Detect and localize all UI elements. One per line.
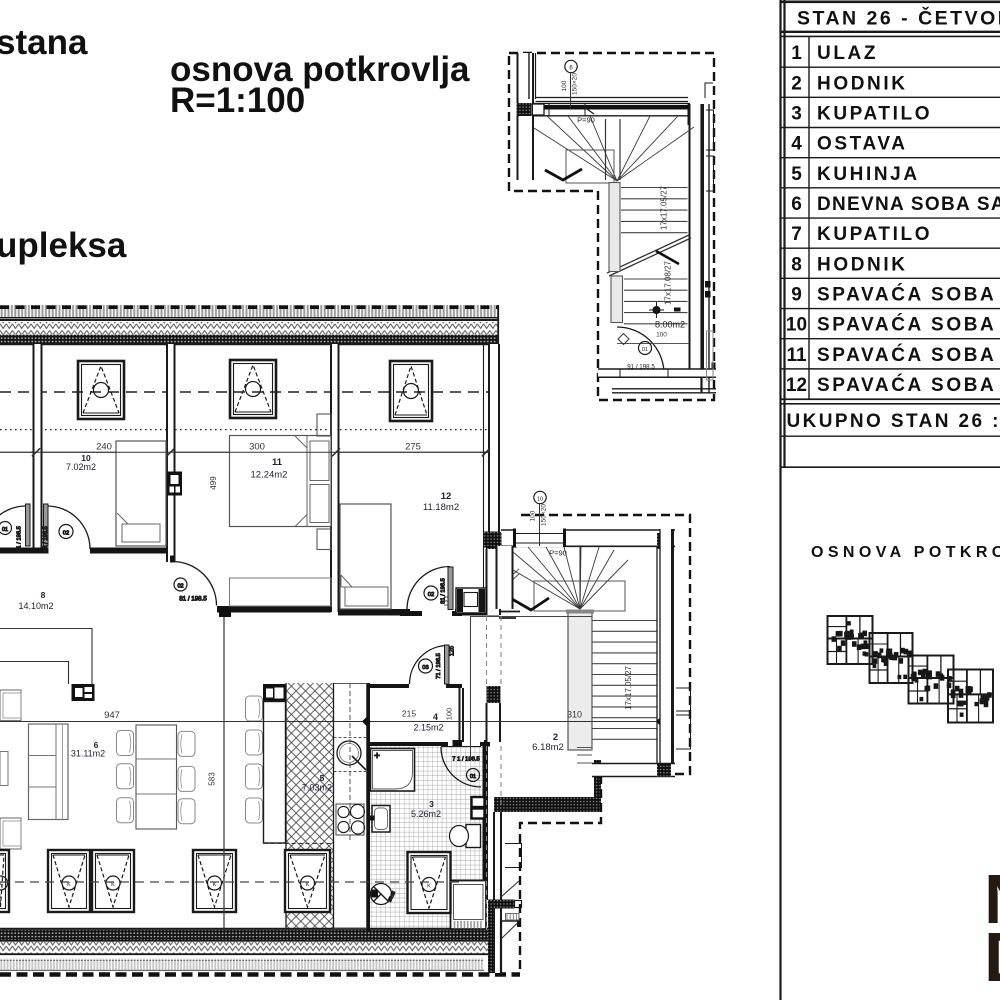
svg-text:K: K	[213, 882, 217, 888]
svg-text:02: 02	[428, 592, 434, 598]
svg-text:10: 10	[786, 315, 807, 336]
svg-text:7.03m2: 7.03m2	[302, 783, 332, 793]
svg-text:P=90: P=90	[549, 549, 567, 558]
svg-text:OSTAVA: OSTAVA	[817, 134, 908, 155]
svg-text:stana: stana	[0, 23, 88, 62]
svg-text:4: 4	[433, 712, 438, 722]
svg-text:5.26m2: 5.26m2	[411, 809, 441, 819]
svg-text:03: 03	[422, 665, 428, 671]
svg-text:240: 240	[96, 442, 112, 453]
svg-text:SPAVAĆA SOBA: SPAVAĆA SOBA	[817, 283, 996, 305]
svg-text:HODNIK: HODNIK	[817, 73, 908, 94]
svg-text:10: 10	[537, 497, 543, 503]
svg-text:K: K	[306, 882, 310, 888]
svg-text:K: K	[427, 884, 431, 890]
svg-text:ULAZ: ULAZ	[817, 43, 878, 64]
svg-text:KUPATILO: KUPATILO	[817, 224, 932, 245]
svg-text:K: K	[111, 882, 115, 888]
svg-text:2: 2	[791, 73, 802, 94]
svg-text:SPAVAĆA SOBA: SPAVAĆA SOBA	[817, 314, 996, 336]
svg-text:100: 100	[445, 708, 454, 721]
svg-text:8.00m2: 8.00m2	[655, 320, 685, 330]
svg-text:K: K	[0, 882, 3, 888]
svg-text:7: 7	[791, 224, 802, 245]
svg-text:100: 100	[530, 510, 537, 521]
svg-text:STAN 26 - ČETVOROSOBAN: STAN 26 - ČETVOROSOBAN	[797, 6, 1000, 30]
svg-text:3: 3	[791, 103, 802, 124]
svg-text:150×20: 150×20	[572, 73, 579, 95]
svg-text:81 / 198.5: 81 / 198.5	[179, 596, 207, 603]
svg-text:01: 01	[470, 774, 476, 780]
svg-text:2.15m2: 2.15m2	[413, 723, 443, 733]
svg-text:8: 8	[41, 590, 46, 600]
svg-text:12: 12	[441, 491, 452, 502]
svg-text:7.02m2: 7.02m2	[66, 462, 96, 472]
svg-text:upleksa: upleksa	[0, 226, 127, 265]
svg-text:17x17.08/27: 17x17.08/27	[664, 260, 673, 305]
svg-text:11: 11	[786, 345, 807, 366]
svg-text:14.10m2: 14.10m2	[18, 601, 53, 611]
svg-text:P=90: P=90	[577, 116, 595, 125]
svg-text:8: 8	[791, 254, 802, 275]
svg-text:5: 5	[320, 773, 325, 783]
svg-text:17x17.05/27: 17x17.05/27	[660, 185, 669, 230]
svg-text:01: 01	[2, 527, 8, 533]
svg-text:KUHINJA: KUHINJA	[817, 164, 920, 185]
svg-text:150×20: 150×20	[541, 504, 548, 526]
svg-text:947: 947	[104, 710, 120, 721]
svg-text:31.11m2: 31.11m2	[71, 749, 105, 759]
svg-text:499: 499	[209, 476, 218, 490]
svg-text:D: D	[984, 918, 1000, 996]
svg-text:12.24m2: 12.24m2	[251, 470, 288, 481]
svg-text:6: 6	[791, 194, 802, 215]
svg-text:R=1:100: R=1:100	[170, 81, 305, 120]
svg-text:6.18m2: 6.18m2	[532, 742, 564, 753]
svg-text:100: 100	[561, 80, 568, 91]
svg-text:UKUPNO STAN 26 :: UKUPNO STAN 26 :	[787, 411, 1000, 432]
svg-text:3: 3	[429, 799, 434, 809]
svg-text:12: 12	[786, 375, 807, 396]
svg-text:310: 310	[567, 710, 582, 720]
svg-text:11.18m2: 11.18m2	[423, 502, 459, 513]
svg-text:81 / 198.5: 81 / 198.5	[43, 526, 49, 552]
svg-text:OSNOVA POTKROVLJA: OSNOVA POTKROVLJA	[811, 544, 1000, 561]
svg-text:7 1 / 198.5: 7 1 / 198.5	[452, 757, 479, 763]
svg-text:5: 5	[791, 164, 802, 185]
svg-text:HODNIK: HODNIK	[817, 254, 908, 275]
svg-text:✛: ✛	[374, 752, 380, 760]
svg-text:300: 300	[249, 442, 265, 453]
svg-text:100: 100	[656, 332, 667, 339]
svg-text:81 / 198.5: 81 / 198.5	[17, 526, 23, 552]
svg-text:02: 02	[63, 531, 69, 537]
svg-text:02: 02	[177, 584, 183, 590]
svg-text:SPAVAĆA SOBA: SPAVAĆA SOBA	[817, 344, 996, 366]
svg-text:1: 1	[791, 43, 802, 64]
svg-text:11: 11	[272, 457, 283, 468]
svg-text:4: 4	[791, 134, 802, 155]
svg-text:215: 215	[402, 709, 416, 719]
svg-text:K: K	[67, 882, 71, 888]
svg-text:583: 583	[208, 772, 217, 786]
svg-text:KUPATILO: KUPATILO	[817, 103, 932, 124]
svg-text:01: 01	[642, 347, 648, 353]
svg-text:71 / 198.5: 71 / 198.5	[436, 653, 442, 679]
svg-text:DNEVNA SOBA SA TRPEZARIJOM: DNEVNA SOBA SA TRPEZARIJOM	[817, 194, 1000, 215]
svg-text:81 / 198.5: 81 / 198.5	[441, 578, 447, 604]
svg-text:17x17.05/27: 17x17.05/27	[624, 665, 633, 710]
svg-text:9: 9	[791, 284, 802, 305]
svg-text:SPAVAĆA SOBA: SPAVAĆA SOBA	[817, 374, 996, 396]
svg-text:275: 275	[405, 442, 421, 453]
svg-text:125: 125	[449, 645, 456, 656]
